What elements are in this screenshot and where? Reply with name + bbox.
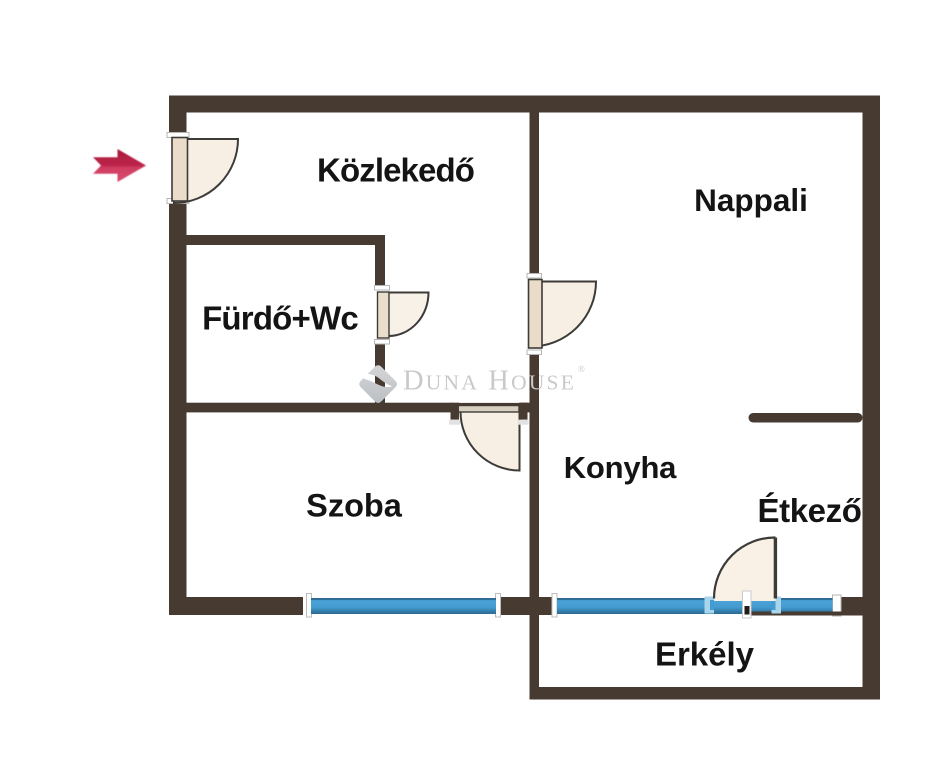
svg-text:Konyha: Konyha [564, 450, 677, 485]
svg-text:Fürdő+Wc: Fürdő+Wc [202, 300, 358, 337]
svg-text:Közlekedő: Közlekedő [317, 152, 474, 189]
svg-text:Nappali: Nappali [694, 182, 808, 218]
svg-text:Erkély: Erkély [655, 636, 755, 673]
svg-text:Étkező: Étkező [758, 492, 862, 529]
svg-text:DUNA HOUSE: DUNA HOUSE [403, 366, 576, 397]
svg-text:Szoba: Szoba [306, 488, 403, 524]
svg-text:®: ® [578, 364, 585, 374]
